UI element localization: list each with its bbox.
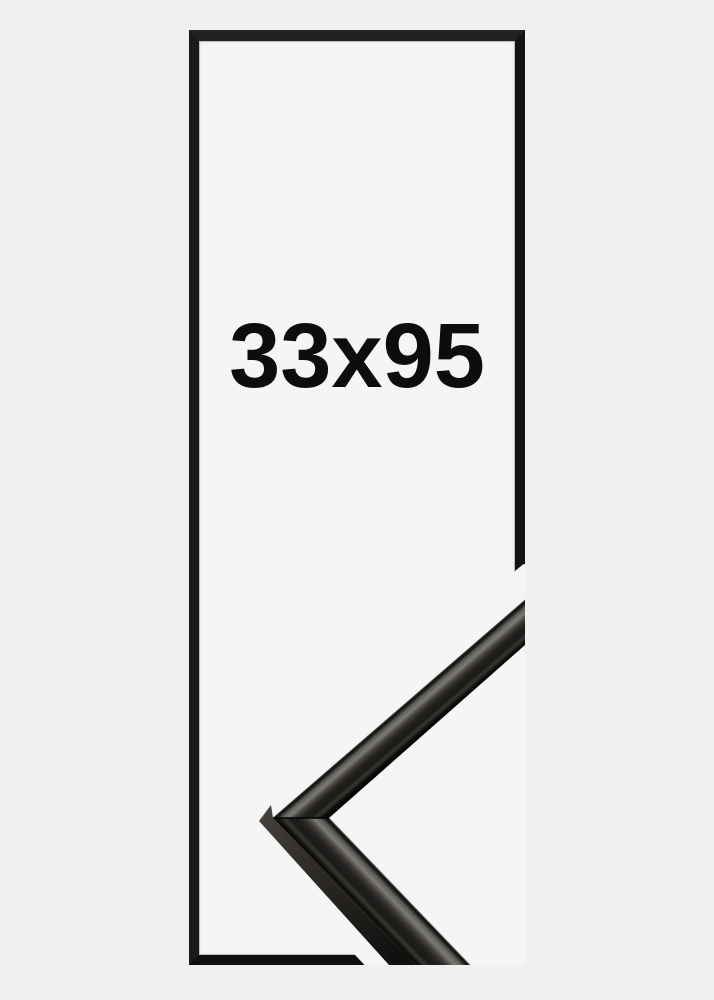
product-image: 33x95 <box>0 0 714 1000</box>
frame-corner-detail-photo <box>189 30 525 965</box>
